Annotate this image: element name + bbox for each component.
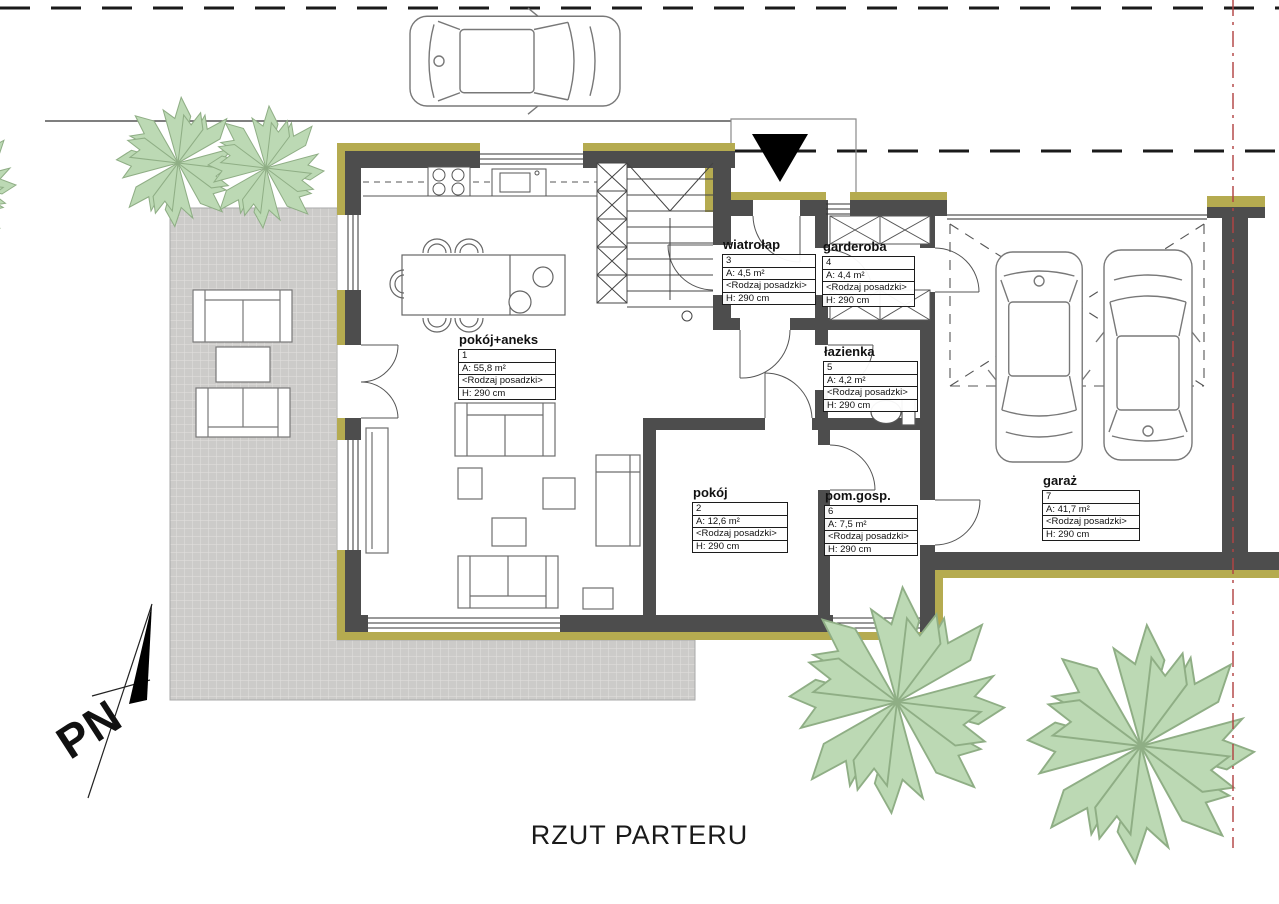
garage-car-left bbox=[988, 252, 1090, 462]
room-label-pokoj-aneks: pokój+aneks 1 A: 55,8 m² <Rodzaj posadzk… bbox=[458, 333, 556, 400]
room-name: pokój+aneks bbox=[459, 333, 556, 347]
room-name: łazienka bbox=[824, 345, 918, 359]
plan-title: RZUT PARTERU bbox=[0, 820, 1279, 851]
room-info-table: 7 A: 41,7 m² <Rodzaj posadzki> H: 290 cm bbox=[1042, 490, 1140, 541]
tv-cabinet bbox=[366, 428, 388, 553]
room-label-lazienka: łazienka 5 A: 4,2 m² <Rodzaj posadzki> H… bbox=[823, 345, 918, 412]
room-name: garderoba bbox=[823, 240, 915, 254]
room-label-garderoba: garderoba 4 A: 4,4 m² <Rodzaj posadzki> … bbox=[822, 240, 915, 307]
side-table bbox=[543, 478, 575, 509]
room-name: pom.gosp. bbox=[825, 489, 918, 503]
tree bbox=[0, 120, 16, 242]
garage-car-right bbox=[1096, 250, 1200, 460]
room-label-pom-gosp: pom.gosp. 6 A: 7,5 m² <Rodzaj posadzki> … bbox=[824, 489, 918, 556]
room-info-table: 2 A: 12,6 m² <Rodzaj posadzki> H: 290 cm bbox=[692, 502, 788, 553]
room-label-garaz: garaż 7 A: 41,7 m² <Rodzaj posadzki> H: … bbox=[1042, 474, 1140, 541]
sink-icon bbox=[492, 169, 546, 196]
floor-plan-sheet: pokój+aneks 1 A: 55,8 m² <Rodzaj posadzk… bbox=[0, 0, 1279, 904]
outdoor-sofa bbox=[193, 290, 292, 342]
outdoor-table bbox=[216, 347, 270, 382]
kitchen bbox=[363, 167, 597, 196]
sofa bbox=[455, 403, 555, 456]
staircase bbox=[597, 163, 713, 321]
side-table bbox=[458, 468, 482, 499]
room-info-table: 3 A: 4,5 m² <Rodzaj posadzki> H: 290 cm bbox=[722, 254, 816, 305]
tall-cabinet bbox=[596, 455, 640, 546]
entrance-arrow-icon bbox=[752, 134, 808, 182]
street-car bbox=[410, 8, 620, 114]
room-label-wiatrolap: wiatrołap 3 A: 4,5 m² <Rodzaj posadzki> … bbox=[722, 238, 816, 305]
room-name: pokój bbox=[693, 486, 788, 500]
floor-plan-drawing bbox=[0, 0, 1279, 904]
room-name: garaż bbox=[1043, 474, 1140, 488]
room-info-table: 6 A: 7,5 m² <Rodzaj posadzki> H: 290 cm bbox=[824, 505, 918, 556]
room-info-table: 1 A: 55,8 m² <Rodzaj posadzki> H: 290 cm bbox=[458, 349, 556, 400]
small-table bbox=[583, 588, 613, 609]
stove-icon bbox=[428, 167, 470, 196]
room-info-table: 5 A: 4,2 m² <Rodzaj posadzki> H: 290 cm bbox=[823, 361, 918, 412]
coffee-table bbox=[492, 518, 526, 546]
living-room-furniture bbox=[366, 403, 640, 609]
sofa bbox=[458, 556, 558, 608]
room-label-pokoj: pokój 2 A: 12,6 m² <Rodzaj posadzki> H: … bbox=[692, 486, 788, 553]
dining-set bbox=[390, 239, 565, 332]
room-name: wiatrołap bbox=[723, 238, 816, 252]
room-info-table: 4 A: 4,4 m² <Rodzaj posadzki> H: 290 cm bbox=[822, 256, 915, 307]
outdoor-sofa bbox=[196, 388, 290, 437]
